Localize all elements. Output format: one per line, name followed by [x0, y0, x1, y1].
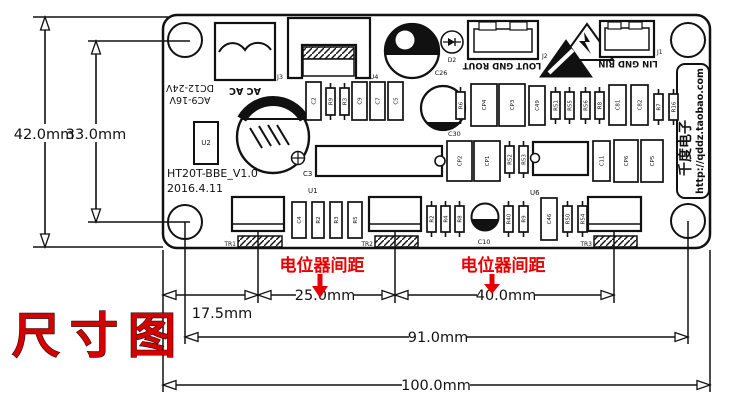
pot-spacing-label-1: 电位器间距 [280, 255, 365, 276]
arrowhead [92, 41, 101, 54]
component-label: CP1 [485, 156, 491, 167]
component-c46: C46 [541, 198, 557, 240]
title-stamp: 尺寸图 [12, 308, 186, 364]
component-label: R3 [343, 97, 349, 105]
j3-label: J3 [276, 73, 283, 81]
c30-label: C30 [448, 130, 461, 138]
component-label: C81 [616, 100, 622, 111]
component-label: R2 [430, 215, 436, 222]
arrowhead [258, 291, 271, 300]
arrowhead [185, 333, 198, 342]
u6-label: U6 [530, 189, 540, 197]
component-r2: R2 [312, 202, 324, 238]
component-r8: R8 [455, 201, 464, 237]
component-label: C11 [600, 156, 606, 167]
component-label: R9 [522, 215, 528, 223]
component-label: R53 [522, 154, 528, 165]
brand-name: 千度电子 [677, 120, 694, 176]
power-line2: DC12-24V [165, 82, 214, 93]
component-cp1: CP1 [474, 141, 500, 181]
u4-label: U4 [370, 73, 379, 81]
j2-tab [510, 22, 527, 30]
u6-body [533, 142, 588, 175]
red-annotations: 电位器间距 电位器间距 尺寸图 [12, 255, 546, 364]
j1-inner [605, 28, 649, 50]
j2-inner [474, 29, 532, 52]
bridge-hatch [303, 47, 354, 59]
component-r3: R3 [340, 83, 349, 120]
component-r53: R53 [519, 141, 528, 178]
u1-label: U1 [308, 187, 318, 195]
component-label: R54 [581, 213, 587, 224]
power-rating-label: AC9-16V DC12-24V [165, 82, 214, 105]
pot-spacing-label-2: 电位器间距 [461, 255, 546, 276]
component-label: C5 [394, 97, 400, 105]
c26-vent [396, 31, 415, 50]
dim-label-pot-gap-2-3: 40.0mm [476, 288, 537, 304]
component-label: R3 [334, 216, 340, 224]
component-r4: R4 [441, 201, 450, 237]
component-r54: R54 [578, 201, 587, 237]
component-cp6: CP6 [614, 140, 638, 182]
component-label: CP4 [482, 99, 488, 110]
arrowhead [697, 381, 710, 390]
component-label: C7 [376, 97, 382, 105]
component-c5: C5 [388, 82, 403, 120]
component-r56: R56 [581, 87, 590, 124]
component-label: C46 [547, 213, 553, 224]
component-label: R5 [353, 216, 359, 224]
component-r55: R55 [565, 87, 574, 124]
arrowhead [675, 333, 688, 342]
j2-tab [479, 22, 496, 30]
brand-box: 千度电子 http://qddz.taobao.com [677, 64, 709, 198]
output-connector-j2: J2 LOUT GND ROUT [463, 21, 548, 70]
dim-label-width-total: 100.0mm [401, 378, 471, 394]
tr1-label: TR1 [223, 241, 236, 248]
j1-tab [629, 22, 642, 29]
component-c81: C81 [609, 85, 626, 125]
power-line1: AC9-16V [169, 94, 211, 105]
component-r6: R6 [456, 87, 465, 124]
potentiometer-tr1: TR1 [223, 197, 284, 248]
input-label: LIN GND RIN [598, 58, 658, 68]
arrowhead [92, 209, 101, 222]
arrowhead [41, 17, 50, 30]
output-label: LOUT GND ROUT [463, 60, 542, 70]
component-r2: R2 [427, 201, 436, 237]
tr3-label: TR3 [579, 241, 592, 248]
component-label: CP6 [624, 155, 630, 166]
component-label: CP5 [650, 155, 656, 166]
component-cp3: CP3 [499, 84, 525, 126]
component-c2: C2 [306, 82, 321, 120]
component-c4: C4 [292, 202, 306, 238]
component-label: R16 [672, 101, 678, 112]
d2-label: D2 [448, 57, 457, 64]
brand-url: http://qddz.taobao.com [695, 68, 706, 194]
c26-label: C26 [435, 69, 448, 77]
arrowhead [163, 381, 176, 390]
dim-label-hole-span: 91.0mm [408, 330, 469, 346]
j1-label: J1 [656, 49, 663, 56]
component-label: R56 [584, 100, 590, 111]
component-c11: C11 [593, 141, 610, 181]
component-r9: R9 [519, 201, 528, 237]
component-label: R40 [507, 213, 513, 224]
u1-notch [435, 156, 445, 166]
board-model: HT20T-BBE_V1.0 [167, 167, 258, 180]
arrowhead [41, 234, 50, 247]
component-r50: R50 [563, 201, 572, 237]
board-date: 2016.4.11 [167, 182, 223, 195]
bridge-slot [303, 59, 354, 76]
bridge-heatsink: U4 [288, 18, 378, 81]
component-cp5: CP5 [641, 140, 663, 182]
mount-hole-top-right [671, 23, 705, 57]
tr1-hatch [238, 236, 282, 247]
component-label: R6 [459, 101, 465, 109]
component-r40: R40 [504, 201, 513, 237]
arrowhead [163, 291, 176, 300]
arrowhead [601, 291, 614, 300]
component-label: C9 [358, 97, 364, 105]
component-r9: R9 [326, 83, 335, 120]
component-c49: C49 [529, 86, 545, 125]
component-r5: R5 [348, 202, 362, 238]
component-label: R9 [329, 97, 335, 105]
component-c7: C7 [370, 82, 385, 120]
dimension-drawing: 42.0mm 33.0mm 17.5mm 25.0mm 40.0mm 91.0m… [0, 0, 750, 413]
u2-label: U2 [201, 139, 211, 147]
input-connector-j1: J1 LIN GND RIN [598, 21, 663, 68]
tr3-body [588, 197, 641, 231]
component-label: CP3 [510, 99, 516, 110]
component-r16: R16 [669, 89, 678, 125]
component-label: C2 [312, 97, 318, 104]
component-c9: C9 [352, 82, 367, 120]
component-label: R4 [444, 215, 450, 223]
dim-label-hole-height: 33.0mm [66, 127, 127, 143]
component-label: R50 [566, 213, 572, 224]
chip-u2: U2 [194, 122, 218, 164]
j1-tab [608, 22, 621, 29]
drawing-canvas: 42.0mm 33.0mm 17.5mm 25.0mm 40.0mm 91.0m… [0, 0, 750, 413]
component-r7: R7 [654, 89, 663, 125]
mount-hole-top-left [168, 23, 202, 57]
component-label: CP2 [458, 156, 464, 167]
tr2-label: TR2 [360, 241, 373, 248]
component-label: R55 [568, 100, 574, 111]
tr3-hatch [594, 236, 637, 247]
component-label: C4 [297, 216, 303, 224]
component-r8: R8 [595, 87, 604, 124]
tr2-hatch [375, 236, 418, 247]
dim-label-pot1-offset: 17.5mm [192, 306, 253, 322]
component-label: R2 [316, 216, 322, 223]
c10-label: C10 [478, 238, 491, 246]
tr1-body [232, 197, 284, 231]
component-label: R51 [554, 100, 560, 111]
j2-label: J2 [541, 53, 548, 60]
u1-body [316, 146, 442, 176]
component-label: R8 [458, 215, 464, 223]
component-cp2: CP2 [447, 141, 472, 181]
component-label: R52 [508, 154, 514, 165]
tr2-body [369, 197, 421, 231]
component-c82: C82 [631, 85, 648, 125]
component-cp4: CP4 [471, 84, 497, 126]
ac-label: AC AC [229, 85, 261, 96]
u6-notch [531, 154, 540, 163]
arrowhead [395, 291, 408, 300]
potentiometer-tr3: TR3 [579, 197, 641, 248]
potentiometer-tr2: TR2 [360, 197, 421, 248]
component-label: C49 [535, 100, 541, 111]
c3-label: C3 [303, 170, 312, 178]
component-r52: R52 [505, 141, 514, 178]
component-r3: R3 [330, 202, 342, 238]
component-label: R8 [598, 101, 604, 109]
component-label: C82 [638, 100, 644, 111]
component-label: R7 [657, 103, 663, 111]
component-r51: R51 [551, 87, 560, 124]
